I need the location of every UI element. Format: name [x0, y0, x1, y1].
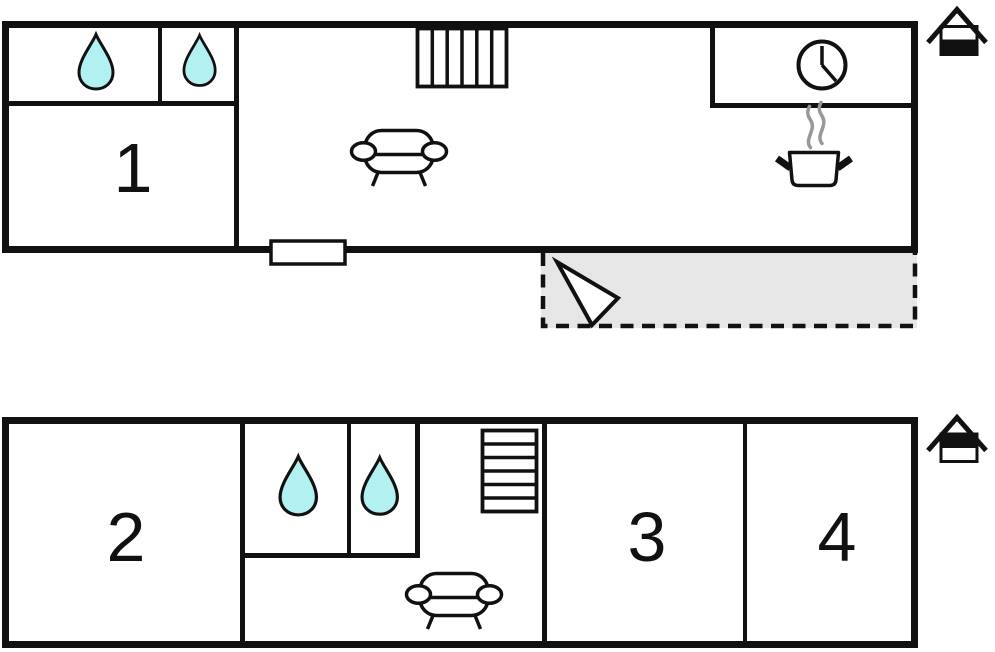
wall-clock-icon	[799, 42, 846, 89]
window-symbol	[271, 241, 345, 264]
upper-floor-plan: 2 3 4	[6, 420, 915, 645]
stairs-icon	[483, 431, 537, 512]
room-3-label: 3	[628, 498, 667, 576]
floor-plan-page: 1 2 3 4	[0, 0, 995, 652]
ground-floor-plan: 1	[5, 24, 915, 264]
room-1-label: 1	[114, 129, 153, 207]
terrace	[541, 250, 917, 328]
stairs-icon	[418, 29, 507, 87]
house-upper-level-icon	[928, 418, 986, 462]
room-2-label: 2	[107, 498, 146, 576]
house-ground-level-icon	[928, 10, 986, 55]
room-4-label: 4	[818, 498, 857, 576]
floor-plan-canvas: 1 2 3 4	[0, 0, 995, 652]
